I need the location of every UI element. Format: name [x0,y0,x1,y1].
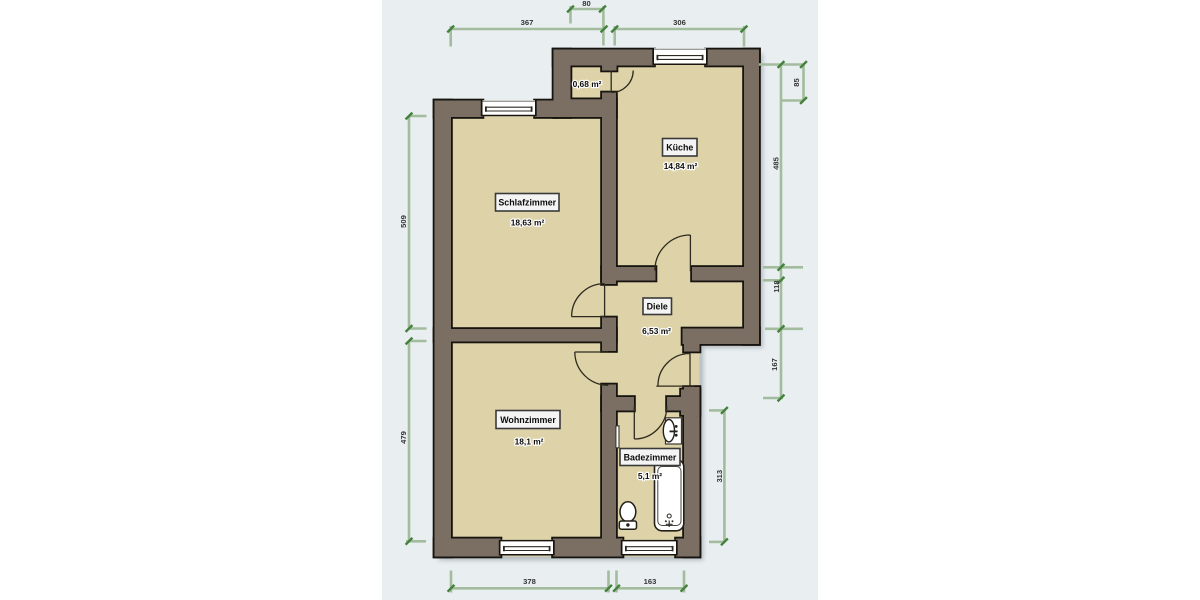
svg-text:118: 118 [772,280,781,292]
svg-text:Schlafzimmer: Schlafzimmer [498,198,556,208]
svg-text:485: 485 [772,156,781,169]
svg-text:313: 313 [715,470,724,483]
svg-text:14,84 m²: 14,84 m² [664,161,698,171]
svg-text:0,68 m²: 0,68 m² [573,79,602,89]
svg-text:18,63 m²: 18,63 m² [511,218,545,228]
svg-text:Badezimmer: Badezimmer [624,452,677,462]
svg-text:306: 306 [673,18,686,27]
svg-text:85: 85 [792,78,801,87]
svg-text:Küche: Küche [666,143,693,153]
svg-text:509: 509 [399,215,408,228]
svg-text:18,1 m²: 18,1 m² [515,436,544,446]
svg-text:167: 167 [770,358,779,371]
svg-text:Diele: Diele [647,302,668,312]
svg-text:378: 378 [523,577,536,586]
svg-text:Wohnzimmer: Wohnzimmer [500,415,556,425]
svg-text:5,1 m²: 5,1 m² [638,471,662,481]
svg-text:6,53 m²: 6,53 m² [642,326,671,336]
svg-text:80: 80 [582,0,590,8]
svg-text:367: 367 [521,18,534,27]
svg-text:163: 163 [644,577,657,586]
svg-text:479: 479 [399,431,408,444]
